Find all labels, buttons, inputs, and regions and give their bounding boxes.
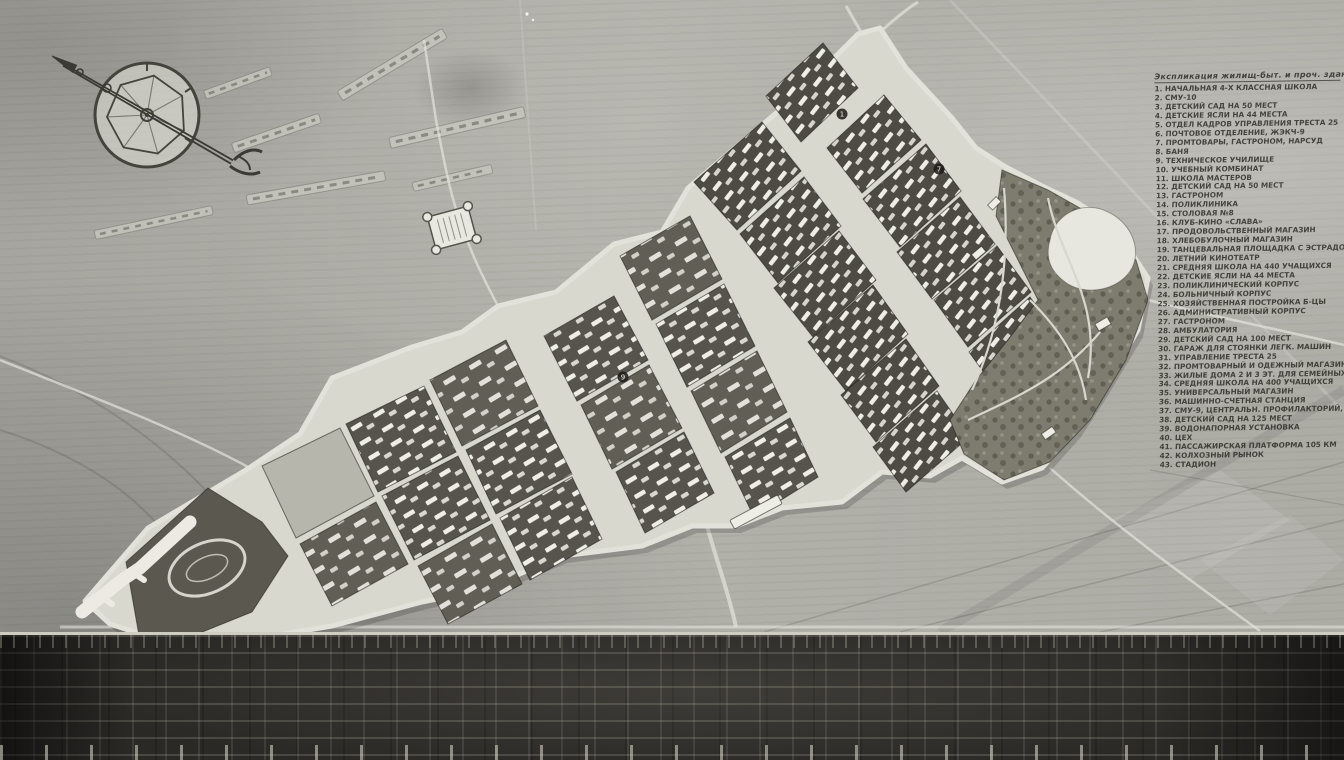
map-legend: Экспликация жилищ-быт. и проч. зданий 1.… bbox=[1154, 70, 1344, 471]
marker-label: 1 bbox=[840, 111, 844, 119]
city-plan-map: 1 7 9 Экспликация жилищ-быт. и проч. зда… bbox=[0, 0, 1344, 632]
legend-items: 1. НАЧАЛЬНАЯ 4-Х КЛАССНАЯ ШКОЛА 2. СМУ-1… bbox=[1154, 83, 1344, 471]
marker-label: 7 bbox=[937, 166, 941, 174]
water-facility bbox=[422, 201, 482, 256]
marker-label: 9 bbox=[621, 374, 625, 382]
pond bbox=[1048, 207, 1135, 290]
compass-north-arrow-icon bbox=[52, 56, 262, 174]
title-band: МНП-СССР Главнефтезаводстрой КУЙБЫШЕВСКО… bbox=[0, 632, 1344, 760]
archival-photo-town-plan: 1 7 9 Экспликация жилищ-быт. и проч. зда… bbox=[0, 0, 1344, 760]
plan-drawing: 1 7 9 bbox=[0, 0, 1344, 632]
